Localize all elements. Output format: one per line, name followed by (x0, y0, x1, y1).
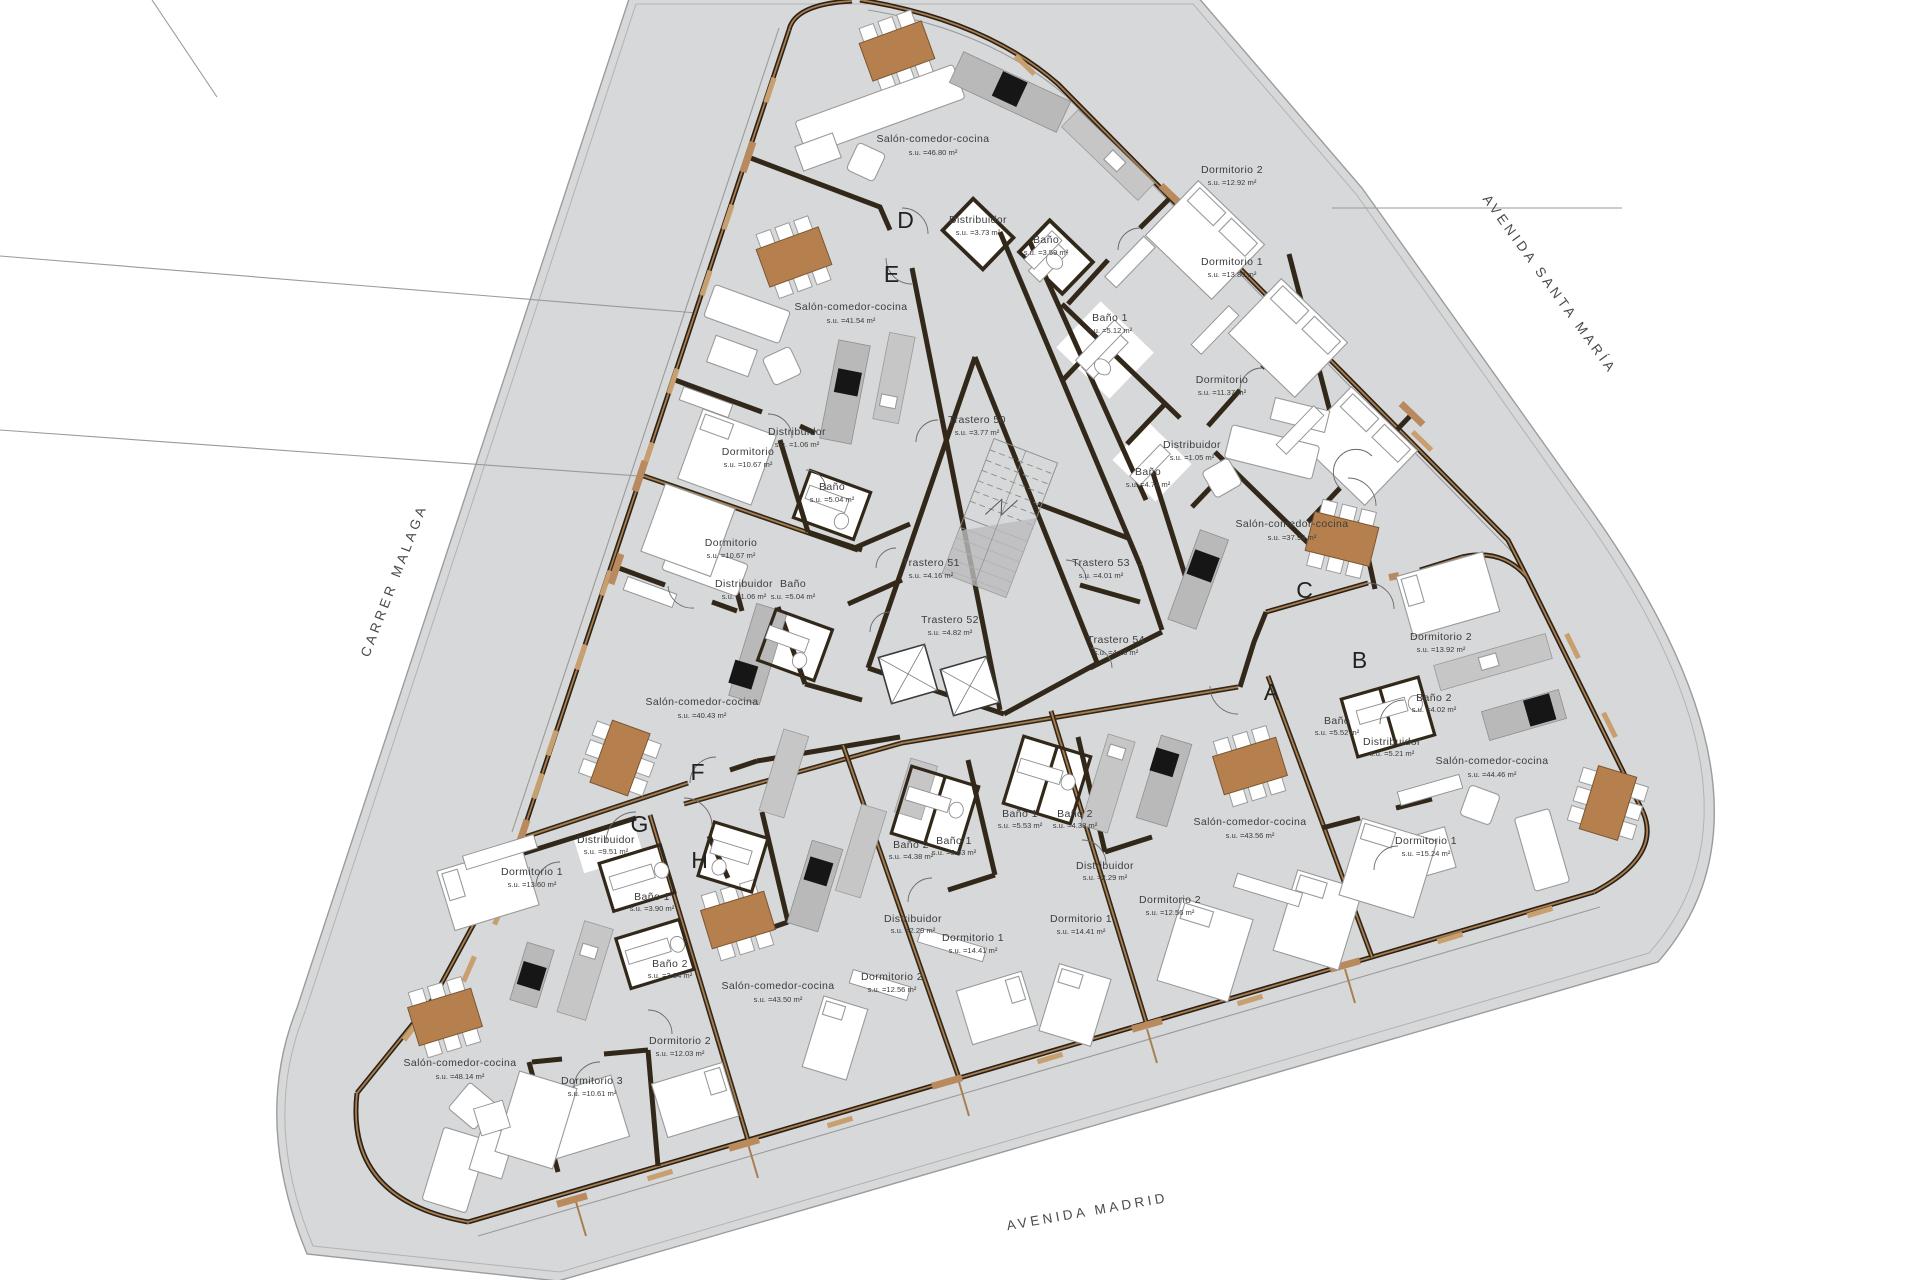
svg-text:F: F (690, 759, 705, 785)
svg-text:Dormitorio 1: Dormitorio 1 (1201, 256, 1263, 268)
svg-text:Dormitorio 3: Dormitorio 3 (561, 1075, 623, 1087)
svg-text:Trastero 51: Trastero 51 (902, 557, 960, 569)
svg-text:s.u. =4.16 m²: s.u. =4.16 m² (909, 571, 954, 580)
svg-text:s.u. =13.92 m²: s.u. =13.92 m² (1417, 645, 1466, 654)
svg-text:s.u. =40.43 m²: s.u. =40.43 m² (678, 711, 727, 720)
svg-text:Baño: Baño (1324, 715, 1350, 727)
svg-text:s.u. =3.90 m²: s.u. =3.90 m² (630, 904, 675, 913)
svg-text:Baño: Baño (1135, 466, 1161, 478)
svg-text:Dormitorio 2: Dormitorio 2 (1201, 164, 1263, 176)
svg-text:Baño 2: Baño 2 (893, 839, 929, 851)
svg-text:Dormitorio 2: Dormitorio 2 (861, 971, 923, 983)
svg-text:s.u. =4.38 m²: s.u. =4.38 m² (1053, 821, 1098, 830)
svg-text:s.u. =5.53 m²: s.u. =5.53 m² (998, 821, 1043, 830)
svg-text:s.u. =48.14 m²: s.u. =48.14 m² (436, 1072, 485, 1081)
svg-text:B: B (1352, 647, 1368, 673)
svg-text:Salón-comedor-cocina: Salón-comedor-cocina (721, 980, 834, 992)
svg-text:Distribuidor: Distribuidor (1163, 439, 1221, 451)
svg-text:Distribuidor: Distribuidor (1363, 736, 1421, 748)
svg-text:Dormitorio 2: Dormitorio 2 (649, 1035, 711, 1047)
svg-text:Salón-comedor-cocina: Salón-comedor-cocina (403, 1057, 516, 1069)
svg-text:Salón-comedor-cocina: Salón-comedor-cocina (1235, 518, 1348, 530)
svg-text:s.u. =4.74 m²: s.u. =4.74 m² (1126, 480, 1171, 489)
svg-text:Salón-comedor-cocina: Salón-comedor-cocina (794, 301, 907, 313)
svg-text:s.u. =12.56 m²: s.u. =12.56 m² (1146, 908, 1195, 917)
svg-text:s.u. =5.52 m²: s.u. =5.52 m² (1315, 728, 1360, 737)
svg-text:Dormitorio 1: Dormitorio 1 (1395, 835, 1457, 847)
svg-text:Dormitorio 1: Dormitorio 1 (942, 932, 1004, 944)
svg-text:s.u. =46.80 m²: s.u. =46.80 m² (909, 148, 958, 157)
svg-text:s.u. =44.46 m²: s.u. =44.46 m² (1468, 770, 1517, 779)
svg-text:Distribuidor: Distribuidor (1076, 860, 1134, 872)
svg-text:Trastero 54: Trastero 54 (1087, 634, 1145, 646)
svg-text:s.u. =1.06 m²: s.u. =1.06 m² (775, 440, 820, 449)
svg-text:s.u. =4.01 m²: s.u. =4.01 m² (1079, 571, 1124, 580)
svg-text:s.u. =4.16 m²: s.u. =4.16 m² (1094, 648, 1139, 657)
svg-text:D: D (897, 207, 915, 233)
svg-text:s.u. =5.21 m²: s.u. =5.21 m² (1370, 749, 1415, 758)
svg-text:G: G (631, 811, 650, 837)
svg-text:Distribuidor: Distribuidor (949, 214, 1007, 226)
svg-text:s.u. =12.03 m²: s.u. =12.03 m² (656, 1049, 705, 1058)
svg-text:s.u. =12.56 m²: s.u. =12.56 m² (868, 985, 917, 994)
svg-text:Baño 1: Baño 1 (634, 891, 670, 903)
svg-text:Dormitorio: Dormitorio (1196, 374, 1248, 386)
svg-text:s.u. =13.60 m²: s.u. =13.60 m² (508, 880, 557, 889)
svg-text:s.u. =10.67 m²: s.u. =10.67 m² (724, 460, 773, 469)
svg-text:s.u. =41.54 m²: s.u. =41.54 m² (827, 316, 876, 325)
svg-text:Salón-comedor-cocina: Salón-comedor-cocina (1435, 755, 1548, 767)
svg-text:s.u. =5.04 m²: s.u. =5.04 m² (810, 495, 855, 504)
svg-text:Dormitorio: Dormitorio (722, 446, 774, 458)
svg-text:s.u. =10.61 m²: s.u. =10.61 m² (568, 1089, 617, 1098)
svg-text:s.u. =5.04 m²: s.u. =5.04 m² (771, 592, 816, 601)
svg-text:C: C (1296, 577, 1314, 603)
svg-text:Salón-comedor-cocina: Salón-comedor-cocina (876, 133, 989, 145)
svg-text:Salón-comedor-cocina: Salón-comedor-cocina (645, 696, 758, 708)
svg-text:s.u. =14.41 m²: s.u. =14.41 m² (1057, 927, 1106, 936)
svg-text:s.u. =1.05 m²: s.u. =1.05 m² (1170, 453, 1215, 462)
svg-text:s.u. =4.02 m²: s.u. =4.02 m² (1412, 705, 1457, 714)
svg-text:s.u. =5.12 m²: s.u. =5.12 m² (1088, 326, 1133, 335)
svg-text:s.u. =2.29 m²: s.u. =2.29 m² (891, 926, 936, 935)
svg-text:Dormitorio 2: Dormitorio 2 (1410, 631, 1472, 643)
svg-text:s.u. =3.59 m²: s.u. =3.59 m² (1024, 248, 1069, 257)
svg-text:Salón-comedor-cocina: Salón-comedor-cocina (1193, 816, 1306, 828)
svg-text:s.u. =2.29 m²: s.u. =2.29 m² (1083, 873, 1128, 882)
svg-text:H: H (691, 847, 709, 873)
svg-text:s.u. =13.80 m²: s.u. =13.80 m² (1208, 270, 1257, 279)
svg-text:Trastero 53: Trastero 53 (1072, 557, 1130, 569)
svg-text:s.u. =11.37 m²: s.u. =11.37 m² (1198, 388, 1247, 397)
svg-text:Dormitorio: Dormitorio (705, 537, 757, 549)
svg-text:Dormitorio 1: Dormitorio 1 (501, 866, 563, 878)
svg-text:s.u. =12.92 m²: s.u. =12.92 m² (1208, 178, 1257, 187)
svg-text:Baño 1: Baño 1 (1002, 808, 1038, 820)
svg-text:s.u. =14.41 m²: s.u. =14.41 m² (949, 946, 998, 955)
svg-text:Baño: Baño (1033, 234, 1059, 246)
svg-text:Baño: Baño (819, 481, 845, 493)
svg-text:s.u. =4.82 m²: s.u. =4.82 m² (928, 628, 973, 637)
svg-text:s.u. =3.73 m²: s.u. =3.73 m² (956, 228, 1001, 237)
svg-text:s.u. =10.67 m²: s.u. =10.67 m² (707, 551, 756, 560)
svg-text:s.u. =5.53 m²: s.u. =5.53 m² (932, 848, 977, 857)
svg-text:s.u. =37.94 m²: s.u. =37.94 m² (1268, 533, 1317, 542)
svg-text:s.u. =1.06 m²: s.u. =1.06 m² (722, 592, 767, 601)
svg-text:Distribuidor: Distribuidor (715, 578, 773, 590)
svg-text:Baño 2: Baño 2 (652, 958, 688, 970)
svg-text:Trastero 52: Trastero 52 (921, 614, 979, 626)
svg-text:Dormitorio 1: Dormitorio 1 (1050, 913, 1112, 925)
svg-text:s.u. =43.50 m²: s.u. =43.50 m² (754, 995, 803, 1004)
svg-text:s.u. =15.24 m²: s.u. =15.24 m² (1402, 849, 1451, 858)
svg-text:Trastero 50: Trastero 50 (948, 414, 1006, 426)
svg-text:Baño 2: Baño 2 (1416, 692, 1452, 704)
svg-text:E: E (884, 261, 900, 287)
svg-text:s.u. =43.56 m²: s.u. =43.56 m² (1226, 831, 1275, 840)
svg-text:s.u. =3.77 m²: s.u. =3.77 m² (955, 428, 1000, 437)
svg-text:Baño 2: Baño 2 (1057, 808, 1093, 820)
svg-text:Distribuidor: Distribuidor (768, 426, 826, 438)
svg-text:Distribuidor: Distribuidor (577, 834, 635, 846)
svg-text:Baño: Baño (780, 578, 806, 590)
svg-text:Dormitorio 2: Dormitorio 2 (1139, 894, 1201, 906)
svg-text:Baño 1: Baño 1 (936, 835, 972, 847)
svg-text:A: A (1264, 679, 1280, 705)
svg-text:Baño 1: Baño 1 (1092, 312, 1128, 324)
svg-text:Distribuidor: Distribuidor (884, 913, 942, 925)
svg-text:s.u. =9.51 m²: s.u. =9.51 m² (584, 847, 629, 856)
svg-text:s.u. =4.38 m²: s.u. =4.38 m² (889, 852, 934, 861)
svg-text:s.u. =3.94 m²: s.u. =3.94 m² (648, 971, 693, 980)
